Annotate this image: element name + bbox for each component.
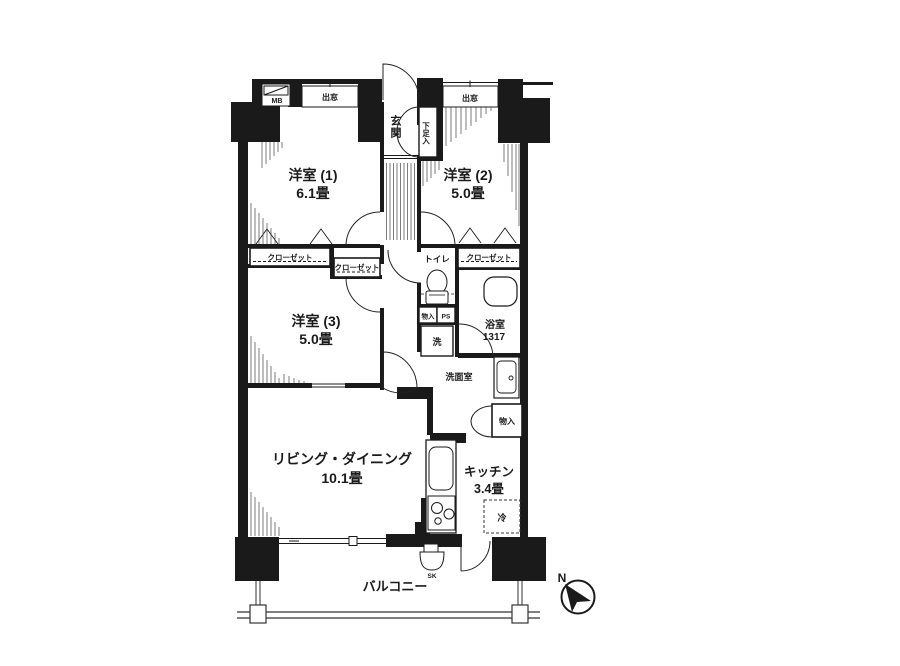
floorplan-drawing: N MB 出窓 出窓 洋室 (1) 6.1畳 洋室 (2) 5.0畳 洋室 (3…	[0, 0, 900, 666]
storage-kitchen-label: 物入	[499, 416, 515, 426]
floorplan-canvas: N MB 出窓 出窓 洋室 (1) 6.1畳 洋室 (2) 5.0畳 洋室 (3…	[0, 0, 900, 666]
bathroom-name: 浴室	[485, 318, 505, 331]
washroom-label: 洗面室	[445, 371, 472, 382]
closet-folding-door-marks	[256, 228, 516, 244]
closet-2-label: クローゼット	[335, 262, 380, 272]
kitchen-name: キッチン	[464, 465, 514, 479]
ld-balcony-window	[279, 536, 386, 546]
bay-window-2-label: 出窓	[462, 93, 478, 103]
living-dining-size: 10.1畳	[321, 470, 362, 486]
room3-door	[346, 278, 380, 312]
washbasin	[494, 357, 519, 398]
room1-door	[346, 212, 380, 245]
closet-1-label: クローゼット	[268, 252, 313, 262]
room3-ld-opening	[312, 382, 345, 389]
kitchen-counter	[426, 440, 456, 533]
entrance-label: 玄関	[389, 115, 400, 139]
bathroom-size: 1317	[483, 332, 506, 343]
room2-door	[421, 212, 455, 245]
entrance-door	[383, 64, 419, 100]
pipe-space-hall-label: PS	[442, 314, 451, 321]
closet-3-label: クローゼット	[467, 252, 512, 262]
kitchen-balcony-door	[461, 541, 490, 571]
washer-label: 洗	[432, 336, 441, 347]
room3-size: 5.0畳	[299, 331, 332, 347]
living-dining-name: リビング・ダイニング	[272, 451, 412, 467]
room1-name: 洋室 (1)	[289, 167, 338, 183]
compass-north-label: N	[558, 571, 567, 585]
pipe-space-kitchen-label: PS	[418, 531, 426, 537]
toilet-fixture	[421, 270, 455, 304]
compass: N	[558, 571, 595, 614]
bathtub	[484, 277, 517, 306]
meter-box-label: MB	[272, 98, 283, 105]
toilet-label: トイレ	[424, 254, 450, 264]
storage-hall-label: 物入	[422, 312, 436, 321]
refrigerator-label: 冷	[497, 512, 506, 523]
slop-sink	[420, 544, 444, 570]
toilet-door	[388, 250, 421, 283]
slop-sink-label: SK	[427, 573, 436, 580]
room2-name: 洋室 (2)	[444, 167, 493, 183]
bay-window-1-label: 出窓	[322, 92, 338, 102]
room2-size: 5.0畳	[451, 185, 484, 201]
washroom-door	[383, 352, 417, 393]
labels: MB 出窓 出窓 洋室 (1) 6.1畳 洋室 (2) 5.0畳 洋室 (3) …	[268, 92, 516, 594]
room1-size: 6.1畳	[296, 185, 329, 201]
balcony-label: バルコニー	[363, 579, 428, 594]
kitchen-sink	[429, 447, 453, 490]
kitchen-size: 3.4畳	[474, 482, 504, 496]
kitchen-storage-doors	[471, 406, 492, 437]
shoe-cabinet-label: 下足入	[422, 122, 430, 145]
room3-name: 洋室 (3)	[292, 313, 341, 329]
